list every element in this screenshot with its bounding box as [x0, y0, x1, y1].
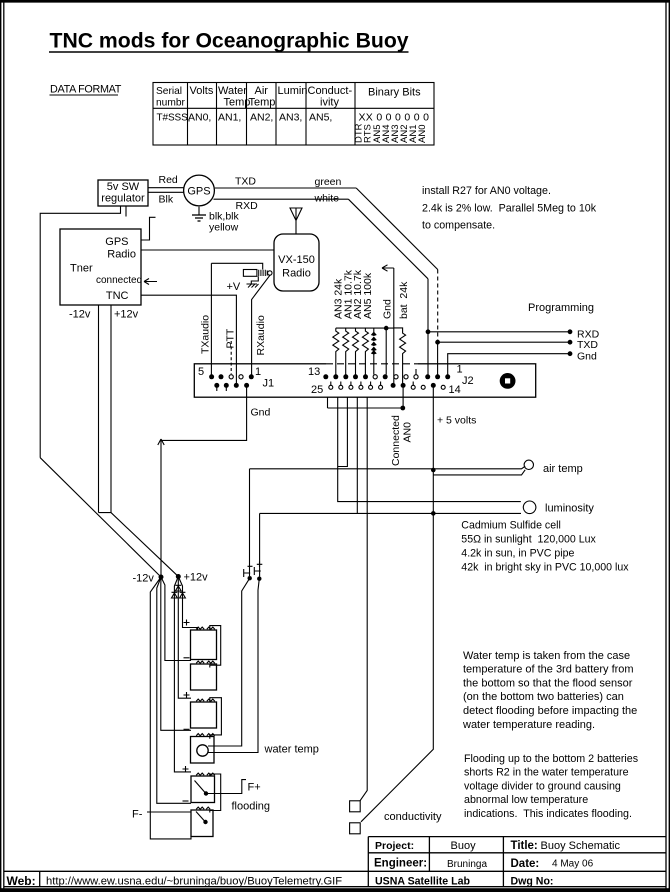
svg-text:Conduct-: Conduct- [308, 85, 353, 97]
svg-text:Water: Water [218, 85, 247, 97]
svg-text:Gnd: Gnd [381, 299, 393, 319]
svg-text:abnormal low temperature: abnormal low temperature [464, 794, 588, 806]
svg-text:Project:: Project: [375, 840, 414, 852]
svg-text:4.2k in sun, in PVC pipe: 4.2k in sun, in PVC pipe [461, 548, 574, 560]
svg-text:5v SW: 5v SW [107, 181, 140, 193]
svg-text:temperature of the 3rd battery: temperature of the 3rd battery from [463, 664, 634, 676]
svg-text:+V: +V [227, 281, 241, 293]
svg-text:14: 14 [449, 384, 461, 396]
svg-text:connected: connected [96, 275, 142, 286]
svg-text:1: 1 [255, 366, 261, 378]
svg-text:http://www.ew.usna.edu/~brunin: http://www.ew.usna.edu/~bruninga/buoy/Bu… [46, 876, 342, 888]
svg-text:bat 24k: bat 24k [398, 281, 410, 319]
svg-text:J2: J2 [462, 375, 474, 387]
svg-text:Temp: Temp [224, 97, 251, 109]
svg-text:F+: F+ [248, 782, 261, 794]
svg-text:conductivity: conductivity [384, 811, 442, 823]
svg-text:Buoy: Buoy [451, 840, 477, 852]
svg-text:Red: Red [159, 174, 178, 186]
svg-text:T#SSS,: T#SSS, [157, 113, 191, 124]
svg-text:AN2,: AN2, [250, 112, 273, 124]
svg-text:TXD: TXD [235, 176, 256, 188]
svg-text:+ 5 volts: + 5 volts [437, 415, 476, 427]
svg-text:4 May 06: 4 May 06 [552, 859, 594, 870]
svg-text:yellow: yellow [209, 222, 239, 234]
svg-text:water temperature reading.: water temperature reading. [462, 719, 595, 731]
svg-text:AN0: AN0 [417, 125, 428, 143]
svg-text:detect flooding before impacti: detect flooding before impacting the [463, 705, 637, 717]
svg-text:to compensate.: to compensate. [422, 220, 495, 232]
svg-text:indications. This indicates f: indications. This indicates flooding. [464, 808, 632, 820]
svg-text:TNC mods for Oceanographic Buo: TNC mods for Oceanographic Buoy [50, 30, 409, 53]
svg-text:VX-150: VX-150 [278, 254, 315, 266]
svg-text:AN5,: AN5, [309, 112, 332, 124]
svg-text:Blk: Blk [159, 194, 174, 206]
svg-text:1: 1 [457, 364, 463, 376]
svg-text:AN0: AN0 [402, 422, 414, 443]
svg-text:DATA FORMAT: DATA FORMAT [50, 84, 122, 96]
svg-text:regulator: regulator [101, 193, 145, 205]
svg-text:AN3,: AN3, [279, 112, 302, 124]
svg-text:AN5 100k: AN5 100k [362, 272, 374, 319]
svg-text:Buoy Schematic: Buoy Schematic [541, 840, 621, 852]
svg-text:AN0,: AN0, [188, 112, 211, 124]
svg-text:TXaudio: TXaudio [200, 315, 212, 354]
svg-text:Web:: Web: [7, 874, 36, 888]
svg-text:Date:: Date: [511, 858, 540, 870]
svg-text:F-: F- [132, 809, 143, 821]
svg-text:RXaudio: RXaudio [255, 315, 267, 355]
svg-text:Title:: Title: [511, 840, 538, 852]
svg-text:TNC: TNC [106, 290, 129, 302]
svg-text:Volts: Volts [190, 85, 214, 97]
svg-text:-12v: -12v [133, 573, 155, 585]
svg-text:voltage divider to ground caus: voltage divider to ground causing [464, 780, 621, 792]
svg-text:Radio: Radio [107, 249, 136, 261]
svg-text:Dwg No:: Dwg No: [511, 876, 554, 888]
svg-text:the bottom so that the flood s: the bottom so that the flood sensor [463, 677, 633, 689]
svg-text:Temp: Temp [249, 97, 276, 109]
svg-text:luminosity: luminosity [545, 503, 594, 515]
svg-text:Radio: Radio [282, 268, 311, 280]
svg-text:Water temp is taken from the c: Water temp is taken from the case [463, 650, 630, 662]
svg-text:42k in bright sky in PVC 10,0: 42k in bright sky in PVC 10,000 lux [461, 562, 629, 574]
svg-text:green: green [315, 176, 342, 188]
svg-text:TXD: TXD [577, 339, 598, 351]
svg-text:Air: Air [255, 85, 269, 97]
svg-text:+12v: +12v [114, 309, 139, 321]
svg-text:shorts R2 in the water tempera: shorts R2 in the water temperature [464, 767, 629, 779]
svg-text:white: white [314, 193, 340, 205]
svg-text:RXD: RXD [236, 200, 259, 212]
svg-text:Bruninga: Bruninga [447, 859, 487, 870]
svg-text:Connected: Connected [390, 415, 402, 466]
svg-text:Cadmium Sulfide cell: Cadmium Sulfide cell [461, 520, 561, 532]
svg-text:XX 0 0 0 0 0 0: XX 0 0 0 0 0 0 [359, 112, 430, 124]
svg-text:Tner: Tner [70, 263, 93, 275]
svg-text:-12v: -12v [69, 309, 91, 321]
svg-text:Programming: Programming [528, 302, 594, 314]
svg-text:Binary Bits: Binary Bits [368, 87, 421, 99]
svg-text:2.4k is 2% low. Parallel 5Meg: 2.4k is 2% low. Parallel 5Meg to 10k [422, 202, 597, 214]
svg-text:55Ω in sunlight 120,000 Lux: 55Ω in sunlight 120,000 Lux [461, 534, 596, 546]
svg-text:install R27 for AN0 voltage.: install R27 for AN0 voltage. [422, 185, 551, 197]
svg-text:GPS: GPS [187, 186, 210, 198]
svg-text:Lumin: Lumin [278, 85, 308, 97]
svg-text:USNA Satellite Lab: USNA Satellite Lab [375, 876, 471, 888]
svg-text:J1: J1 [263, 378, 275, 390]
svg-text:Gnd: Gnd [251, 407, 271, 419]
svg-text:ivity: ivity [320, 97, 339, 109]
svg-text:Flooding up to the bottom 2 ba: Flooding up to the bottom 2 batteries [464, 753, 638, 765]
svg-text:Engineer:: Engineer: [374, 858, 427, 870]
svg-text:PTT: PTT [225, 328, 237, 348]
svg-text:numbr: numbr [156, 98, 185, 109]
svg-text:25: 25 [311, 384, 323, 396]
svg-text:Serial: Serial [156, 86, 182, 97]
svg-text:(on the bottom two batteries): (on the bottom two batteries) can [463, 691, 624, 703]
svg-text:+12v: +12v [184, 572, 209, 584]
svg-text:GPS: GPS [105, 236, 128, 248]
svg-text:Gnd: Gnd [577, 351, 597, 363]
svg-text:AN1,: AN1, [218, 112, 241, 124]
svg-text:13: 13 [308, 366, 320, 378]
svg-text:flooding: flooding [232, 801, 271, 813]
svg-text:water temp: water temp [264, 744, 319, 756]
svg-text:air temp: air temp [543, 463, 583, 475]
svg-text:5: 5 [198, 366, 204, 378]
